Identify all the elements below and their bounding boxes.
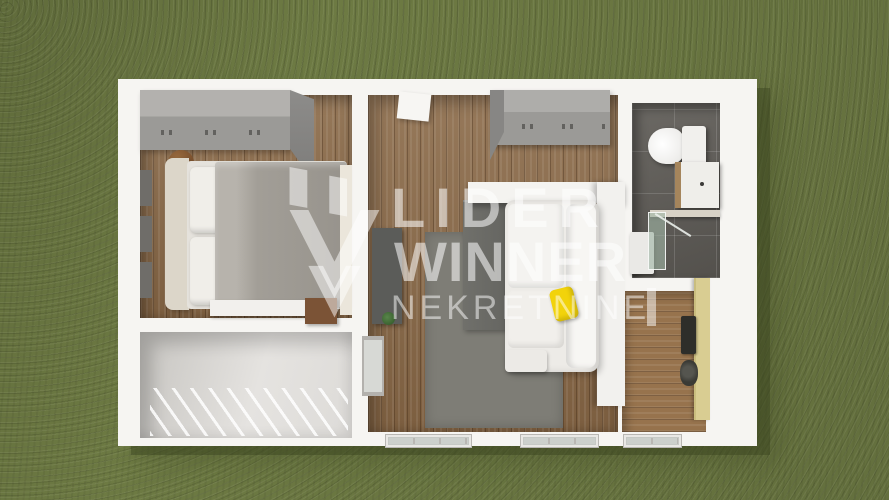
- side-window: [362, 336, 384, 396]
- watermark-line2: WINNER: [394, 234, 627, 290]
- entrance-door: [694, 278, 710, 420]
- kitchen-sink: [680, 360, 698, 386]
- grass-background: LIDER WINNER NEKRETNINE: [0, 0, 889, 500]
- sofa-ottoman: [505, 350, 547, 372]
- bed-headboard: [165, 158, 189, 310]
- bedroom-wall-art: [140, 170, 152, 302]
- window-glass: [627, 438, 678, 444]
- kitchen-panel: [681, 316, 696, 354]
- toilet-bowl: [648, 128, 684, 164]
- bottom-window: [385, 434, 472, 448]
- watermark-line1: LIDER: [391, 180, 609, 236]
- living-room-wardrobe-handles: [512, 124, 606, 129]
- vanity-handle: [700, 182, 704, 186]
- bottom-window: [520, 434, 599, 448]
- logo-chevron-icon: [277, 167, 392, 339]
- living-room-door-leaf: [397, 91, 432, 121]
- window-glass: [524, 438, 595, 444]
- living-room-wardrobe: [490, 90, 610, 145]
- bottom-window: [623, 434, 682, 448]
- window-glass: [389, 438, 468, 444]
- toilet-tank: [682, 126, 706, 166]
- watermark-bar: [647, 288, 656, 326]
- bedroom-wardrobe-handles: [150, 130, 282, 135]
- terrace-deck-stripes: [150, 388, 348, 436]
- bathroom-vanity: [675, 162, 719, 208]
- bedroom-wardrobe: [140, 90, 290, 150]
- watermark-line3: NEKRETNINE: [391, 291, 650, 325]
